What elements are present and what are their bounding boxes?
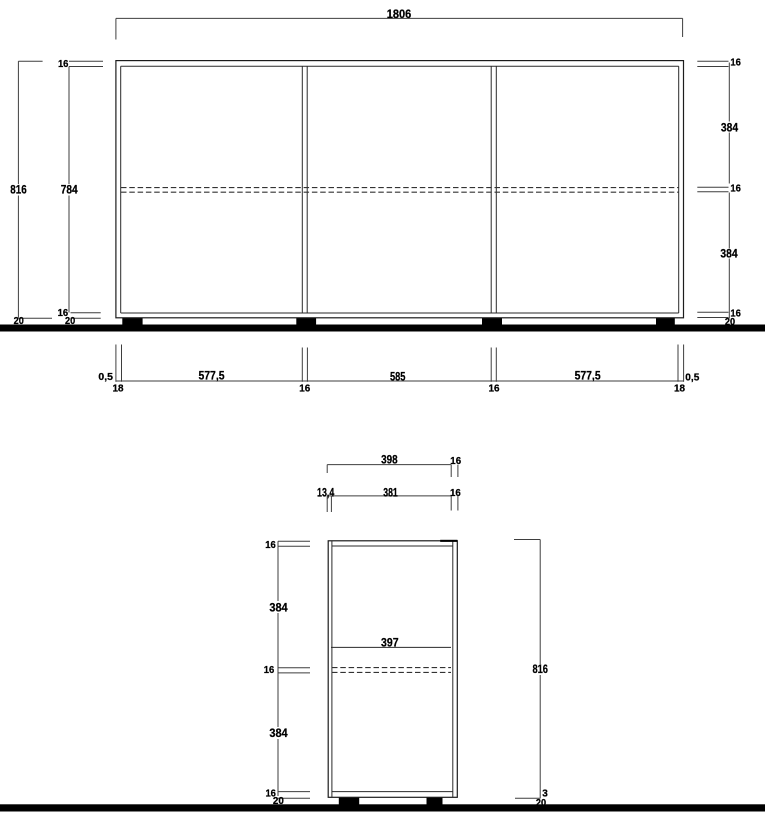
svg-text:20: 20 <box>273 796 284 807</box>
svg-text:16: 16 <box>730 58 741 69</box>
svg-text:0,5: 0,5 <box>685 373 699 384</box>
svg-text:381: 381 <box>383 486 398 500</box>
svg-text:20: 20 <box>536 798 547 809</box>
svg-text:784: 784 <box>61 183 78 197</box>
svg-text:384: 384 <box>721 121 738 135</box>
svg-text:13,4: 13,4 <box>317 485 335 499</box>
svg-text:577,5: 577,5 <box>199 369 225 383</box>
svg-text:20: 20 <box>65 316 76 327</box>
svg-text:16: 16 <box>450 456 461 467</box>
svg-text:585: 585 <box>390 369 406 383</box>
svg-text:18: 18 <box>674 384 685 395</box>
svg-text:1806: 1806 <box>387 7 412 21</box>
svg-text:397: 397 <box>381 635 399 649</box>
svg-text:384: 384 <box>269 726 288 740</box>
svg-text:384: 384 <box>720 247 737 261</box>
svg-text:16: 16 <box>489 383 500 394</box>
svg-text:16: 16 <box>450 488 461 499</box>
svg-text:577,5: 577,5 <box>575 369 601 383</box>
svg-text:816: 816 <box>10 183 27 197</box>
svg-text:20: 20 <box>14 316 25 327</box>
svg-text:16: 16 <box>299 383 310 394</box>
svg-text:0,5: 0,5 <box>98 372 113 383</box>
svg-text:816: 816 <box>532 662 548 676</box>
svg-text:398: 398 <box>381 453 398 467</box>
svg-text:20: 20 <box>725 317 736 328</box>
svg-text:18: 18 <box>113 384 124 395</box>
svg-text:16: 16 <box>265 540 276 551</box>
svg-text:384: 384 <box>269 601 288 615</box>
svg-text:16: 16 <box>730 183 741 194</box>
svg-text:16: 16 <box>58 59 69 70</box>
svg-text:16: 16 <box>264 665 275 676</box>
